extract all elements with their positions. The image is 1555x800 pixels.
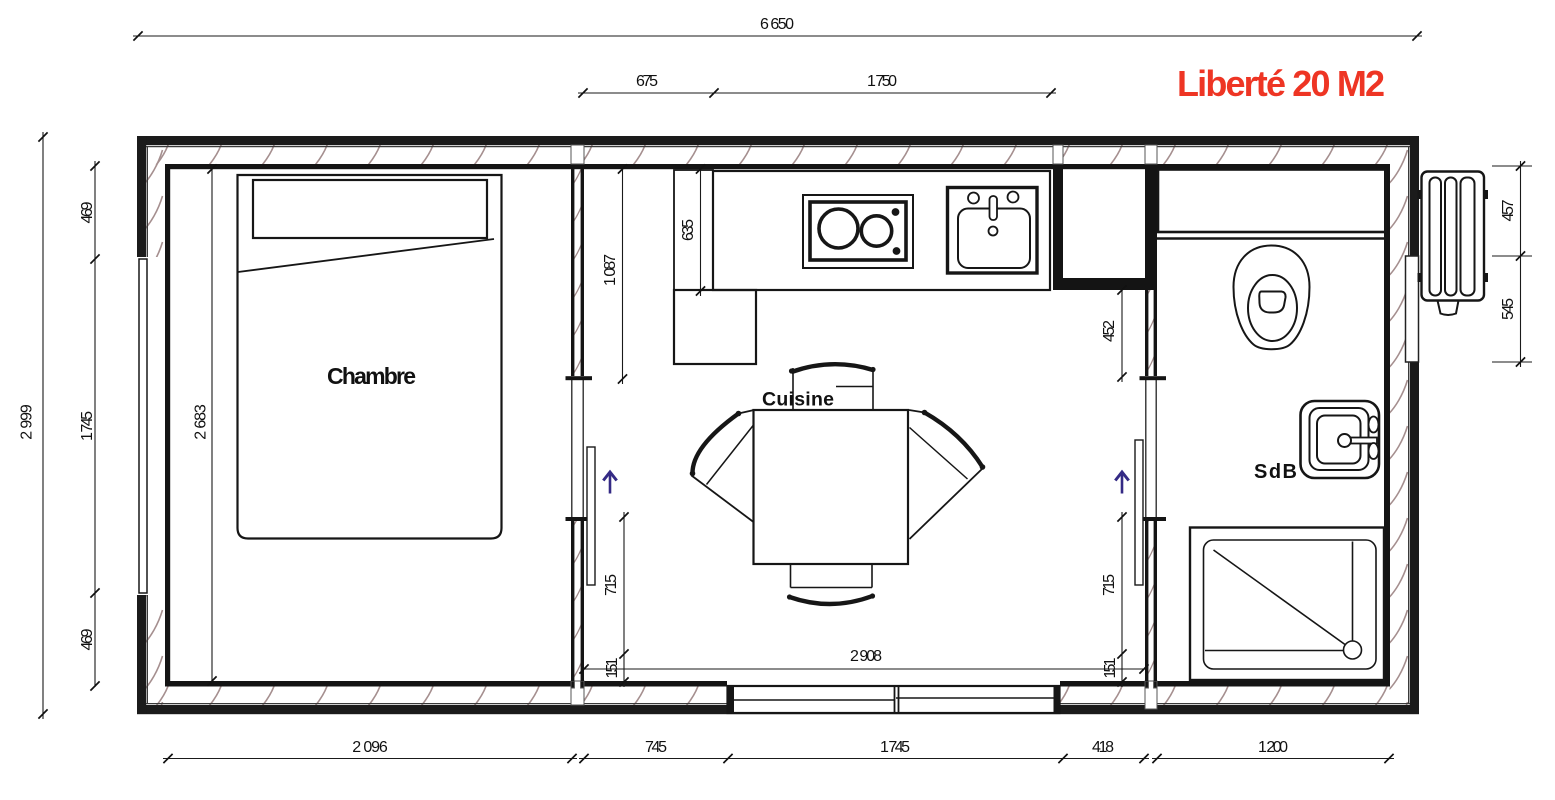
svg-text:457: 457: [1500, 199, 1517, 221]
svg-text:1 745: 1 745: [79, 411, 96, 441]
svg-text:2 908: 2 908: [850, 648, 882, 665]
svg-text:1 750: 1 750: [867, 73, 897, 90]
svg-text:151: 151: [604, 657, 621, 678]
svg-text:635: 635: [680, 219, 697, 241]
svg-text:469: 469: [79, 201, 96, 223]
svg-text:452: 452: [1101, 320, 1118, 342]
svg-text:715: 715: [603, 574, 620, 596]
svg-text:1 745: 1 745: [880, 739, 910, 756]
svg-text:715: 715: [1101, 574, 1118, 596]
svg-text:1 087: 1 087: [602, 254, 619, 286]
svg-text:Liberté 20 M2: Liberté 20 M2: [1177, 63, 1385, 104]
svg-text:675: 675: [636, 73, 658, 90]
svg-text:2 683: 2 683: [193, 404, 210, 440]
svg-text:Cuisine: Cuisine: [762, 389, 834, 411]
svg-text:418: 418: [1092, 739, 1114, 756]
svg-text:151: 151: [1102, 657, 1119, 678]
svg-text:2 096: 2 096: [352, 739, 388, 756]
svg-text:1 200: 1 200: [1258, 739, 1288, 756]
svg-text:469: 469: [79, 628, 96, 650]
svg-text:6 650: 6 650: [760, 16, 794, 33]
svg-text:545: 545: [1500, 298, 1517, 320]
svg-text:SdB: SdB: [1254, 461, 1297, 483]
svg-text:Chambre: Chambre: [327, 363, 416, 389]
svg-text:2 999: 2 999: [19, 404, 36, 440]
svg-text:745: 745: [645, 739, 667, 756]
